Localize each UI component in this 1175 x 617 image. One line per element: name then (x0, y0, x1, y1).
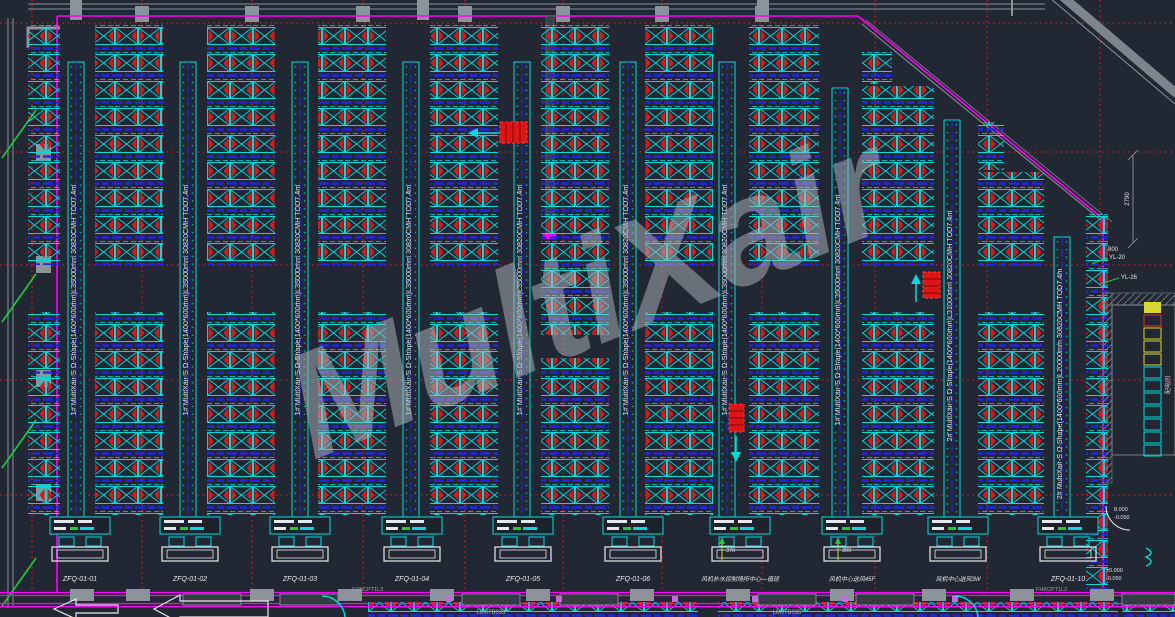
zone-label: 风机补水控制场所中心—值班 (701, 575, 780, 583)
elevation-label: -0.050 (1114, 515, 1130, 521)
dim-label: 370 (726, 548, 735, 554)
duct-label: 2# MultiXair-S Ω-Shape(1400*600mm)L31000… (945, 211, 954, 441)
dim-label: 2790 (1125, 192, 1131, 206)
door-tag: FHKCPT1L3 (352, 587, 383, 593)
window-tag: LM07B033 (476, 610, 506, 616)
zone-label: ZFQ-01-02 (172, 576, 207, 583)
elevation-label: ±0.000 (1106, 568, 1123, 574)
air-duct-10: 2# MultiXair-S Ω-Shape(1400*600mm)L20000… (1054, 237, 1070, 532)
zone-label: 风机中心送风45F (829, 575, 876, 583)
room-tag: 配电间 (1164, 376, 1172, 394)
door-tag: FHKCPT1L2 (1036, 587, 1067, 593)
window-tag: LM07B035 (772, 610, 802, 616)
zone-label: ZFQ-01-03 (282, 576, 317, 583)
riser-tag: YL-26 (1121, 275, 1138, 281)
jet-fan-icon (911, 272, 940, 302)
duct-label: 1# MultiXair-S Ω-Shape(1400*600mm)L35000… (69, 185, 78, 415)
duct-label: 1# MultiXair-S Ω-Shape(1400*600mm)L35000… (181, 185, 190, 415)
zone-label: ZFQ-01-06 (615, 576, 650, 583)
air-duct-3: 1# MultiXair-S Ω-Shape(1400*600mm)L35000… (292, 62, 308, 532)
zone-label: ZFQ-01-04 (394, 576, 429, 583)
air-duct-1: 1# MultiXair-S Ω-Shape(1400*600mm)L35000… (68, 62, 84, 532)
floor-plan-canvas: 1# MultiXair-S Ω-Shape(1400*600mm)L35000… (0, 0, 1175, 617)
air-duct-9: 2# MultiXair-S Ω-Shape(1400*600mm)L31000… (944, 120, 960, 532)
riser-tag: YL-20 (1109, 255, 1126, 261)
zone-label: ZFQ-01-10 (1050, 576, 1085, 583)
cad-floor-plan: 1# MultiXair-S Ω-Shape(1400*600mm)L35000… (0, 0, 1175, 617)
zone-label: ZFQ-01-01 (62, 576, 97, 583)
zone-label: ZFQ-01-05 (505, 576, 540, 583)
elevation-label: 8.000 (1114, 507, 1128, 513)
dim-label: 300 (842, 548, 851, 554)
duct-label: 2# MultiXair-S Ω-Shape(1400*600mm)L20000… (1055, 269, 1064, 499)
dim-label: 800 (1108, 247, 1119, 253)
air-duct-2: 1# MultiXair-S Ω-Shape(1400*600mm)L35000… (180, 62, 196, 532)
elevation-label: -0.050 (1106, 576, 1122, 582)
zone-label: 风机中心送风3W (935, 575, 981, 583)
